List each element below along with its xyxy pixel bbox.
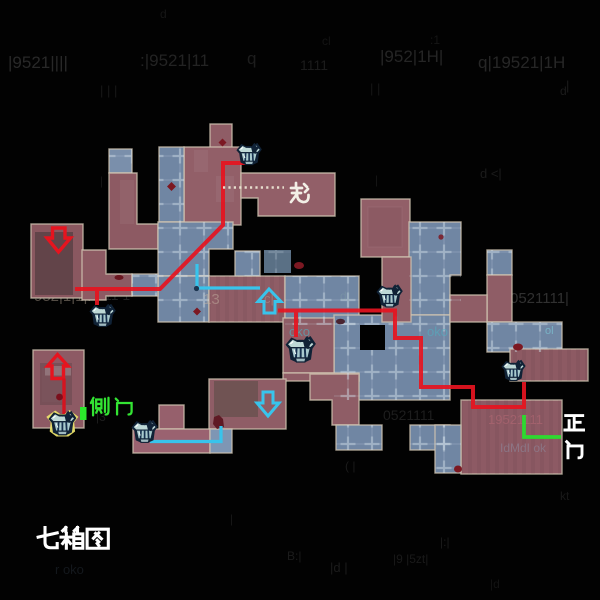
- svg-text:| | |: | | |: [100, 83, 117, 98]
- svg-text::|9521|11: :|9521|11: [140, 51, 209, 70]
- svg-text:kt: kt: [560, 489, 570, 503]
- svg-text:|: |: [100, 174, 103, 188]
- svg-text:|:|: |:|: [440, 535, 450, 549]
- svg-text:|d |: |d |: [330, 560, 348, 575]
- svg-text:|: |: [230, 512, 233, 526]
- svg-text:0521111|: 0521111|: [510, 290, 569, 307]
- svg-text:|952|1H|: |952|1H|: [380, 47, 443, 66]
- svg-text:q|19521|1H: q|19521|1H: [478, 53, 565, 72]
- svg-text::1: :1: [430, 33, 440, 47]
- svg-text:0521111: 0521111: [383, 407, 435, 423]
- svg-text:19521111: 19521111: [488, 412, 543, 427]
- svg-text:ol: ol: [545, 325, 554, 337]
- svg-text:cl: cl: [322, 34, 331, 48]
- svg-text:|d: |d: [490, 577, 500, 591]
- svg-text:|9 |5zt|: |9 |5zt|: [393, 552, 428, 566]
- svg-text:( |: ( |: [345, 459, 355, 473]
- svg-text:| |: | |: [370, 81, 380, 96]
- svg-text:q: q: [247, 49, 256, 68]
- svg-text:13: 13: [203, 291, 220, 308]
- svg-text:IdMdI ok: IdMdI ok: [500, 441, 547, 455]
- svg-text:oko: oko: [427, 324, 448, 339]
- svg-text:1111: 1111: [300, 57, 328, 73]
- svg-text:d|: d|: [340, 289, 350, 303]
- svg-text:d <|: d <|: [480, 166, 502, 181]
- svg-text:|: |: [566, 78, 569, 93]
- svg-text:|: |: [375, 173, 378, 187]
- svg-text:B:|: B:|: [287, 549, 301, 563]
- svg-text:r oko: r oko: [55, 562, 84, 577]
- svg-text:d: d: [160, 7, 167, 21]
- svg-text:|9521||||: |9521||||: [8, 53, 68, 72]
